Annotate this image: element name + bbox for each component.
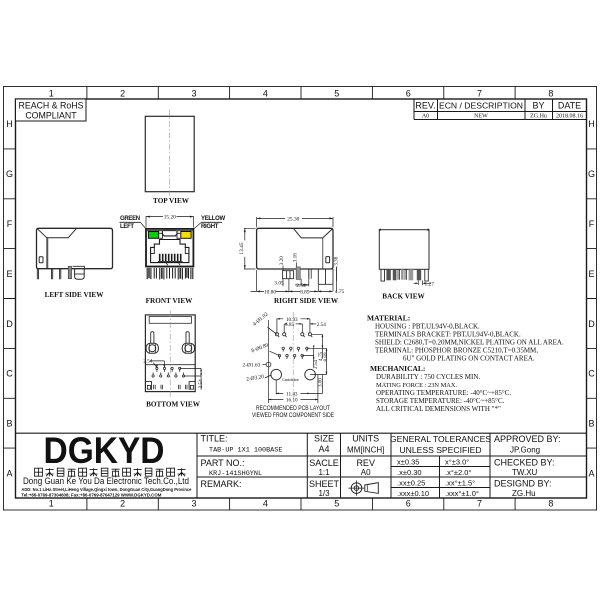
svg-text:1: 1 — [49, 499, 54, 509]
svg-text:3.38: 3.38 — [333, 256, 339, 265]
svg-text:1: 1 — [49, 89, 54, 99]
svg-text:BY: BY — [532, 101, 544, 111]
svg-text:F: F — [7, 219, 13, 229]
svg-text:A0: A0 — [422, 114, 429, 120]
svg-text:APPROVED BY:: APPROVED BY: — [494, 434, 561, 444]
svg-text:25.30: 25.30 — [287, 216, 299, 222]
svg-text:B: B — [588, 419, 594, 429]
svg-text:DATE: DATE — [558, 101, 581, 111]
svg-text:8.89: 8.89 — [323, 352, 329, 361]
svg-text:ZG.Hu: ZG.Hu — [512, 489, 536, 498]
svg-text:TERMINAL: PHOSPHOR BRONZE C521: TERMINAL: PHOSPHOR BRONZE C5210,T=0.35MM… — [375, 347, 538, 355]
svg-text:1:1: 1:1 — [318, 468, 330, 477]
svg-text:ALL CRITICAL DEMENSIONS WITH ": ALL CRITICAL DEMENSIONS WITH "*" — [376, 405, 501, 413]
svg-text:YELLOW: YELLOW — [201, 216, 226, 222]
svg-text:H: H — [588, 119, 595, 129]
svg-text:3.18: 3.18 — [292, 253, 298, 262]
svg-text:DURABILITY : 750 CYCLES MIN.: DURABILITY : 750 CYCLES MIN. — [376, 373, 480, 381]
svg-text:SHEET: SHEET — [309, 479, 340, 489]
svg-text:E: E — [588, 269, 594, 279]
svg-text:6: 6 — [406, 499, 411, 509]
svg-text:2.54: 2.54 — [143, 359, 152, 365]
svg-text:TERMINALS BRACKET: PBT,UL94V-0: TERMINALS BRACKET: PBT,UL94V-0,BLACK. — [375, 331, 521, 339]
svg-text:.xx±0.25: .xx±0.25 — [397, 479, 425, 488]
svg-text:1/3: 1/3 — [318, 489, 330, 498]
svg-text:MATING FORCE : 23N MAX.: MATING FORCE : 23N MAX. — [376, 382, 458, 389]
svg-text:FRONT VIEW: FRONT VIEW — [146, 297, 193, 305]
svg-text:8: 8 — [548, 499, 553, 509]
svg-text:SHIELD: C2680,T=0.20MM,NICKEL: SHIELD: C2680,T=0.20MM,NICKEL PLATING ON… — [375, 339, 564, 347]
svg-text:REV: REV — [356, 458, 375, 468]
svg-text:REMARK:: REMARK: — [201, 479, 242, 489]
svg-text:13.45: 13.45 — [239, 242, 245, 254]
svg-text:2.54: 2.54 — [317, 322, 326, 328]
svg-text:NEW: NEW — [474, 114, 488, 120]
svg-text:3: 3 — [191, 89, 196, 99]
svg-text:JP.Gong: JP.Gong — [510, 446, 540, 455]
svg-text:G: G — [588, 169, 595, 179]
svg-text:A4: A4 — [318, 444, 329, 454]
svg-text:SIZE: SIZE — [314, 434, 334, 444]
svg-text:COMPLIANT: COMPLIANT — [25, 110, 77, 120]
svg-text:REACH & RoHS: REACH & RoHS — [18, 101, 83, 111]
svg-text:5: 5 — [334, 89, 339, 99]
svg-text:REV.: REV. — [415, 101, 435, 111]
svg-text:DESIGND BY:: DESIGND BY: — [494, 479, 552, 489]
svg-text:7: 7 — [477, 499, 482, 509]
svg-text:.xxx±0.10: .xxx±0.10 — [397, 489, 429, 498]
svg-text:MM[INCH]: MM[INCH] — [347, 446, 384, 455]
svg-text:KRJ-141SHGYNL: KRJ-141SHGYNL — [209, 470, 262, 478]
svg-text:TAB-UP 1X1 100BASE: TAB-UP 1X1 100BASE — [209, 447, 282, 455]
svg-text:BOTTOM VIEW: BOTTOM VIEW — [146, 401, 201, 409]
svg-text:10.80: 10.80 — [264, 290, 276, 296]
svg-text:x°±3.0°: x°±3.0° — [445, 458, 469, 467]
svg-text:Tel:+86-0769-87304608; Fax:+86: Tel:+86-0769-87304608; Fax:+86-0769-8764… — [21, 493, 161, 498]
svg-text:TITLE:: TITLE: — [201, 434, 228, 444]
svg-text:2018.08.16: 2018.08.16 — [556, 114, 583, 120]
svg-text:2-Ø1.63: 2-Ø1.63 — [243, 362, 261, 368]
svg-text:HOUSING : PBT,UL94V-0,BLACK.: HOUSING : PBT,UL94V-0,BLACK. — [375, 323, 480, 331]
svg-text:1.27: 1.27 — [425, 282, 435, 288]
svg-text:C: C — [6, 369, 13, 379]
svg-text:3.05: 3.05 — [274, 280, 284, 286]
svg-text:VIEWED FROM COMPONENT SIDE: VIEWED FROM COMPONENT SIDE — [252, 413, 334, 419]
svg-text:.xx°±1.5°: .xx°±1.5° — [445, 479, 475, 488]
svg-text:x±0.35: x±0.35 — [397, 458, 419, 467]
svg-text:C: C — [588, 369, 595, 379]
svg-text:GREEN: GREEN — [120, 216, 140, 222]
svg-text:6U" GOLD PLATING ON CONTACT AR: 6U" GOLD PLATING ON CONTACT AREA. — [403, 355, 535, 363]
svg-text:ECN / DESCRIPTION: ECN / DESCRIPTION — [439, 100, 523, 110]
svg-text:A: A — [6, 468, 12, 478]
svg-text:8.89: 8.89 — [300, 290, 310, 296]
svg-text:CHECKED BY:: CHECKED BY: — [494, 458, 555, 468]
svg-text:2: 2 — [120, 499, 125, 509]
svg-text:7: 7 — [477, 89, 482, 99]
svg-text:UNITS: UNITS — [352, 434, 379, 444]
svg-text:LEFT SIDE VIEW: LEFT SIDE VIEW — [45, 291, 105, 299]
svg-text:Caddidce: Caddidce — [282, 377, 300, 382]
svg-text:15.20: 15.20 — [164, 215, 176, 221]
svg-text:11.43: 11.43 — [286, 392, 298, 398]
svg-text:4: 4 — [263, 499, 268, 509]
svg-text:B: B — [6, 419, 12, 429]
svg-text:RIGHT SIDE VIEW: RIGHT SIDE VIEW — [274, 297, 339, 305]
svg-text:TOP VIEW: TOP VIEW — [153, 197, 190, 205]
svg-text:6.85: 6.85 — [285, 322, 294, 328]
svg-text:3: 3 — [191, 499, 196, 509]
svg-text:4: 4 — [263, 89, 268, 99]
svg-text:ZG.Hu: ZG.Hu — [530, 114, 547, 120]
svg-text:PART NO.:: PART NO.: — [201, 458, 245, 468]
svg-text:G: G — [6, 169, 13, 179]
svg-text:STORAGE TEMPERATURE: -40°C~+85: STORAGE TEMPERATURE: -40°C~+85°C. — [376, 397, 505, 405]
svg-text:OPERATING TEMPERATURE: -40°C~+: OPERATING TEMPERATURE: -40°C~+85°C. — [376, 389, 511, 397]
svg-text:DGKYD: DGKYD — [44, 429, 165, 471]
svg-text:GENERAL TOLERANCES: GENERAL TOLERANCES — [390, 434, 491, 444]
svg-text:6: 6 — [406, 89, 411, 99]
svg-text:RIGHT: RIGHT — [201, 224, 219, 230]
svg-text:E: E — [6, 269, 12, 279]
svg-text:8: 8 — [548, 89, 553, 99]
svg-text:16.10: 16.10 — [286, 398, 298, 404]
svg-text:4.75: 4.75 — [335, 289, 345, 295]
svg-text:A: A — [588, 468, 594, 478]
svg-text:.x°±2.0°: .x°±2.0° — [445, 468, 471, 477]
svg-text:RECOMMENDED PCB LAYOUT: RECOMMENDED PCB LAYOUT — [256, 406, 330, 412]
svg-text:A0: A0 — [361, 468, 371, 477]
svg-text:D: D — [6, 319, 13, 329]
svg-text:MATERIAL:: MATERIAL: — [367, 314, 410, 323]
svg-text:2: 2 — [120, 89, 125, 99]
svg-text:Dong Guan Ke You Da Electronic: Dong Guan Ke You Da Electronic Tech.Co.,… — [23, 476, 189, 486]
svg-text:SACLE: SACLE — [309, 458, 339, 468]
svg-text:MECHANICAL:: MECHANICAL: — [370, 364, 425, 373]
svg-text:D: D — [588, 319, 595, 329]
svg-text:3.20: 3.20 — [279, 256, 285, 265]
svg-text:H: H — [6, 119, 13, 129]
svg-text:BACK VIEW: BACK VIEW — [382, 293, 425, 301]
svg-text:LEFT: LEFT — [120, 224, 134, 230]
svg-text:.x±0.30: .x±0.30 — [397, 468, 422, 477]
svg-text:.xxx°±1.0°: .xxx°±1.0° — [445, 489, 479, 498]
svg-text:5: 5 — [334, 499, 339, 509]
svg-text:UNLESS SPECIFIED: UNLESS SPECIFIED — [399, 445, 481, 455]
svg-text:TW.XU: TW.XU — [512, 468, 538, 477]
svg-text:ADD: No.1 LiHa Street,LiHeng V: ADD: No.1 LiHa Street,LiHeng Village,Qin… — [21, 487, 191, 492]
svg-text:F: F — [589, 219, 595, 229]
